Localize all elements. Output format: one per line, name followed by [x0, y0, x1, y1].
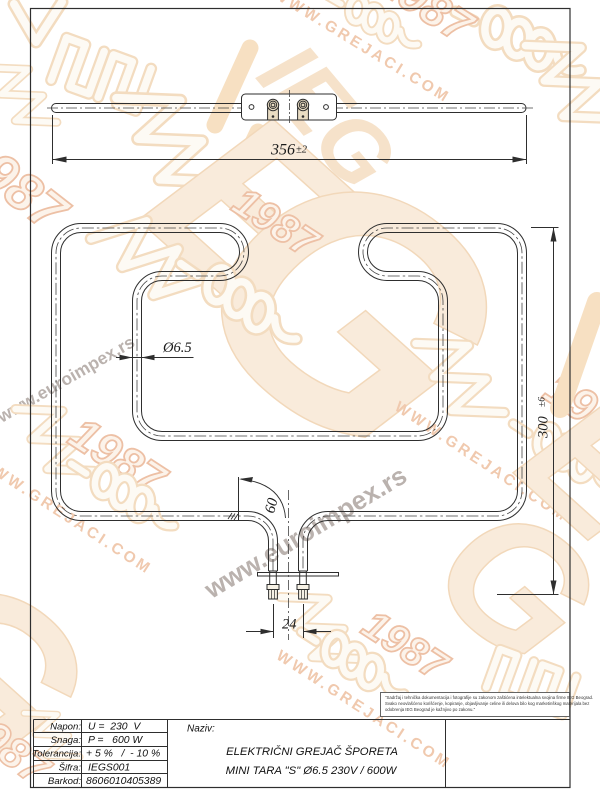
svg-text:Svako neovlašćeno korišćenje,: Svako neovlašćeno korišćenje, kopiranje,…: [385, 701, 589, 706]
svg-text:±2: ±2: [296, 145, 308, 156]
svg-text:U = 230 V: U = 230 V: [88, 721, 141, 732]
svg-text:Ø6.5: Ø6.5: [162, 340, 192, 356]
svg-text:+ 5 % / - 10 %: + 5 % / - 10 %: [86, 749, 160, 760]
svg-text:Naziv:: Naziv:: [187, 724, 215, 735]
svg-text:300: 300: [536, 416, 552, 440]
svg-text:Napon:: Napon:: [50, 721, 81, 732]
svg-text:356: 356: [270, 142, 295, 159]
svg-text:IEGS001: IEGS001: [88, 762, 130, 773]
svg-text:Šifra:: Šifra:: [59, 762, 82, 773]
svg-text:±6: ±6: [538, 397, 548, 407]
svg-text:Barkod:: Barkod:: [48, 776, 81, 787]
svg-text:odobrenja IEG Beograd je kažnj: odobrenja IEG Beograd je kažnjivo po zak…: [385, 707, 476, 712]
svg-text:P = 600 W: P = 600 W: [88, 735, 143, 746]
svg-text:MINI TARA "S" Ø6.5 230V / 600W: MINI TARA "S" Ø6.5 230V / 600W: [226, 765, 398, 777]
svg-text:ELEKTRIČNI GREJAČ ŠPORETA: ELEKTRIČNI GREJAČ ŠPORETA: [226, 745, 398, 758]
svg-text:Snaga:: Snaga:: [51, 735, 82, 746]
svg-text:Tolerancija:: Tolerancija:: [32, 749, 81, 760]
svg-text:24: 24: [282, 617, 297, 633]
svg-text:"Sadržaj i tehnička dokumentac: "Sadržaj i tehnička dokumentacija i foto…: [385, 695, 593, 700]
svg-text:8606010405389: 8606010405389: [86, 776, 161, 787]
